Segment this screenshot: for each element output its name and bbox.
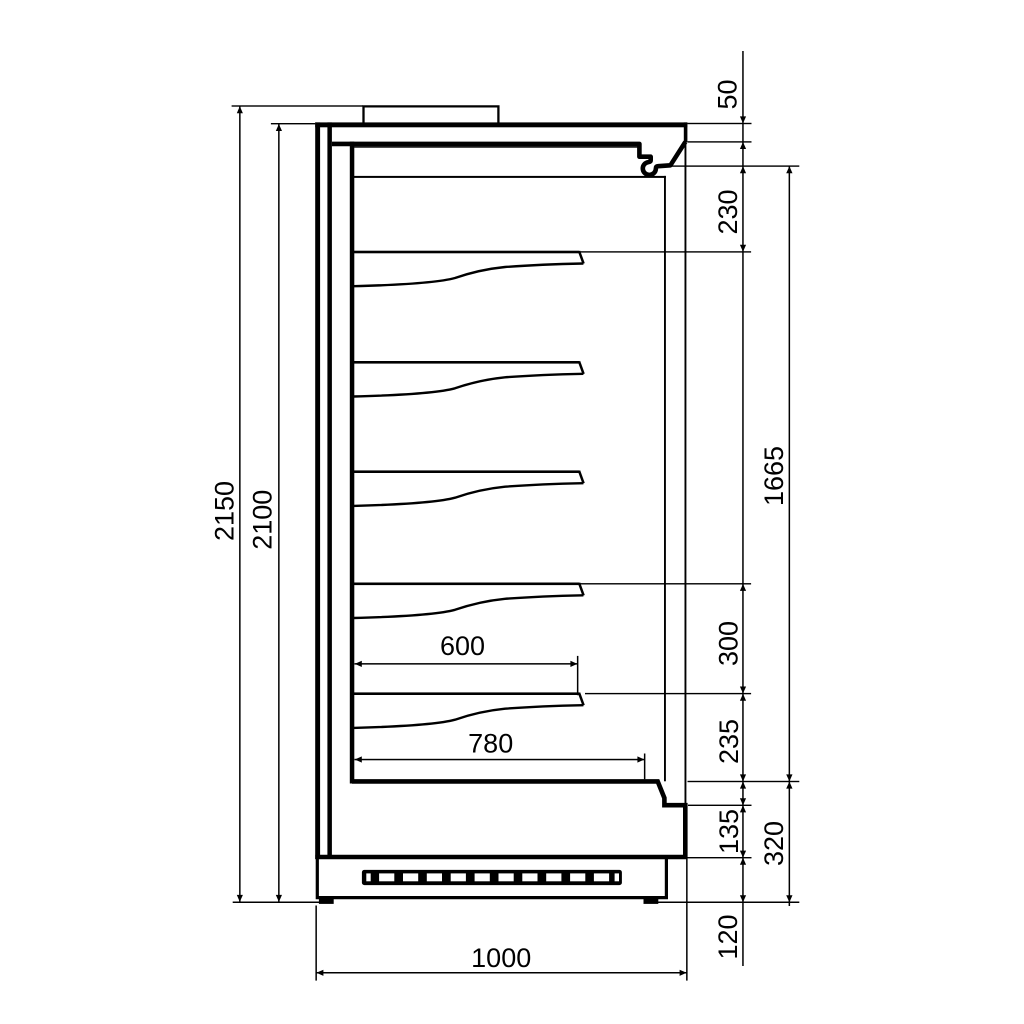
svg-text:230: 230 bbox=[713, 189, 743, 234]
svg-text:1000: 1000 bbox=[471, 943, 531, 973]
svg-text:235: 235 bbox=[714, 719, 744, 764]
svg-text:1665: 1665 bbox=[759, 446, 789, 506]
svg-text:120: 120 bbox=[713, 914, 743, 959]
svg-text:50: 50 bbox=[713, 79, 743, 109]
svg-text:320: 320 bbox=[759, 821, 789, 866]
svg-text:2100: 2100 bbox=[248, 490, 278, 550]
svg-text:780: 780 bbox=[468, 728, 513, 758]
svg-text:135: 135 bbox=[714, 809, 744, 854]
svg-text:2150: 2150 bbox=[210, 481, 240, 541]
svg-text:600: 600 bbox=[440, 631, 485, 661]
svg-text:300: 300 bbox=[714, 621, 744, 666]
